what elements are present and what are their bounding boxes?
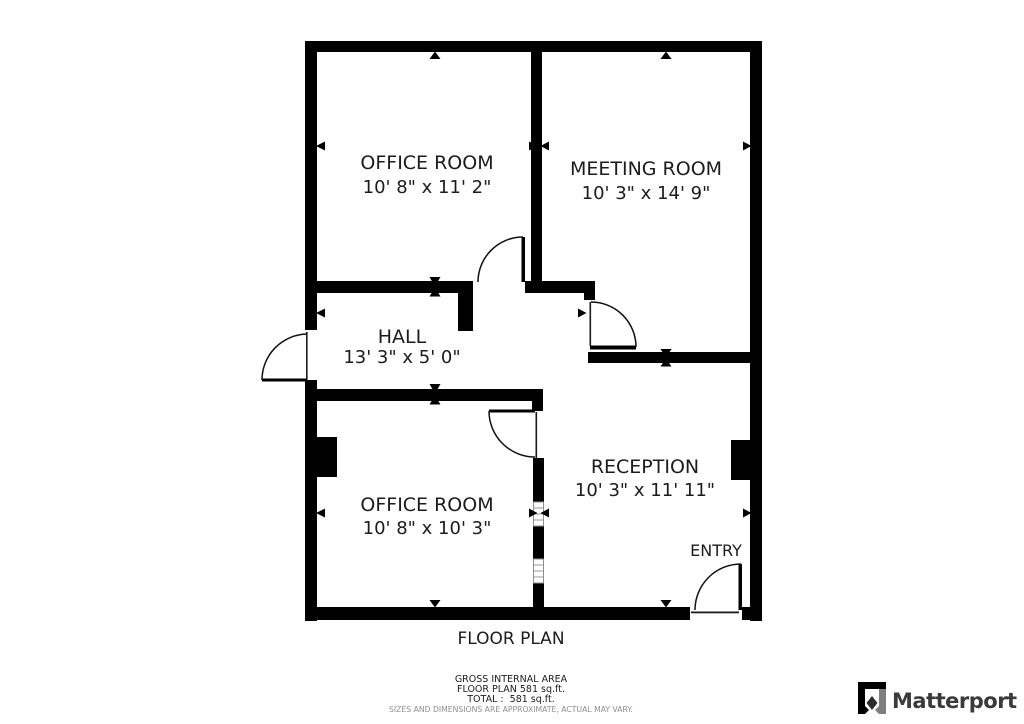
door-office1 [478,237,525,282]
dim-arrow-left-icon [316,509,325,518]
window-divider-lower [534,559,544,583]
room-name-office1: OFFICE ROOM [360,152,493,174]
floor-plan-canvas: OFFICE ROOM 10' 8" x 11' 2" MEETING ROOM… [0,0,1024,724]
entry-label: ENTRY [690,541,742,560]
disclaimer-line: SIZES AND DIMENSIONS ARE APPROXIMATE, AC… [389,705,633,714]
wall-top [305,41,762,52]
room-name-office2: OFFICE ROOM [360,494,493,516]
wall-hall-top-right [525,281,595,293]
wall-right [750,41,762,621]
plan-footer: FLOOR PLAN GROSS INTERNAL AREA FLOOR PLA… [389,629,633,714]
door-meeting-room [590,302,637,350]
matterport-logo-icon [858,682,886,714]
dim-arrow-right-icon [578,309,587,318]
wall-office1-meeting-divider [531,52,542,283]
dim-arrow-down-icon [661,600,672,608]
wall-office2-reception-divider-a [533,458,544,502]
room-dims-office2: 10' 8" x 10' 3" [363,518,492,539]
plan-title: FLOOR PLAN [457,629,564,649]
total-area-line: TOTAL : 581 sq.ft. [466,694,554,705]
wall-meeting-reception-divider [588,352,750,363]
dim-arrow-left-icon [316,142,325,151]
room-dims-meeting: 10' 3" x 14' 9" [582,183,711,204]
door-entry [691,564,742,613]
wall-office2-reception-divider-c [533,583,544,607]
room-name-hall: HALL [378,326,427,348]
wall-hall-stub [458,293,473,331]
room-dims-office1: 10' 8" x 11' 2" [363,177,492,198]
matterport-wordmark: Matterport [892,689,1017,713]
pilaster-right [731,440,750,480]
wall-bottom-left [305,607,690,620]
wall-hall-top-right-return [584,293,595,300]
wall-left-upper [305,41,317,330]
wall-bottom-right [742,607,762,620]
wall-hall-top-left [317,281,473,293]
pilaster-left [305,437,337,477]
doors [262,237,742,613]
dim-arrow-up-icon [430,52,441,60]
wall-hall-bottom [305,389,543,401]
door-hall-exterior [262,332,308,382]
room-dims-reception: 10' 3" x 11' 11" [575,480,715,501]
room-name-meeting: MEETING ROOM [570,158,722,180]
room-name-reception: RECEPTION [591,456,699,478]
room-dims-hall: 13' 3" x 5' 0" [343,347,460,368]
wall-left-lower [305,380,317,621]
matterport-branding: Matterport [858,682,1017,714]
wall-office2-reception-divider-b [533,526,544,559]
dim-arrow-down-icon [430,600,441,608]
dim-arrow-up-icon [661,52,672,60]
dim-arrow-left-icon [316,309,325,318]
door-office2 [489,410,537,459]
